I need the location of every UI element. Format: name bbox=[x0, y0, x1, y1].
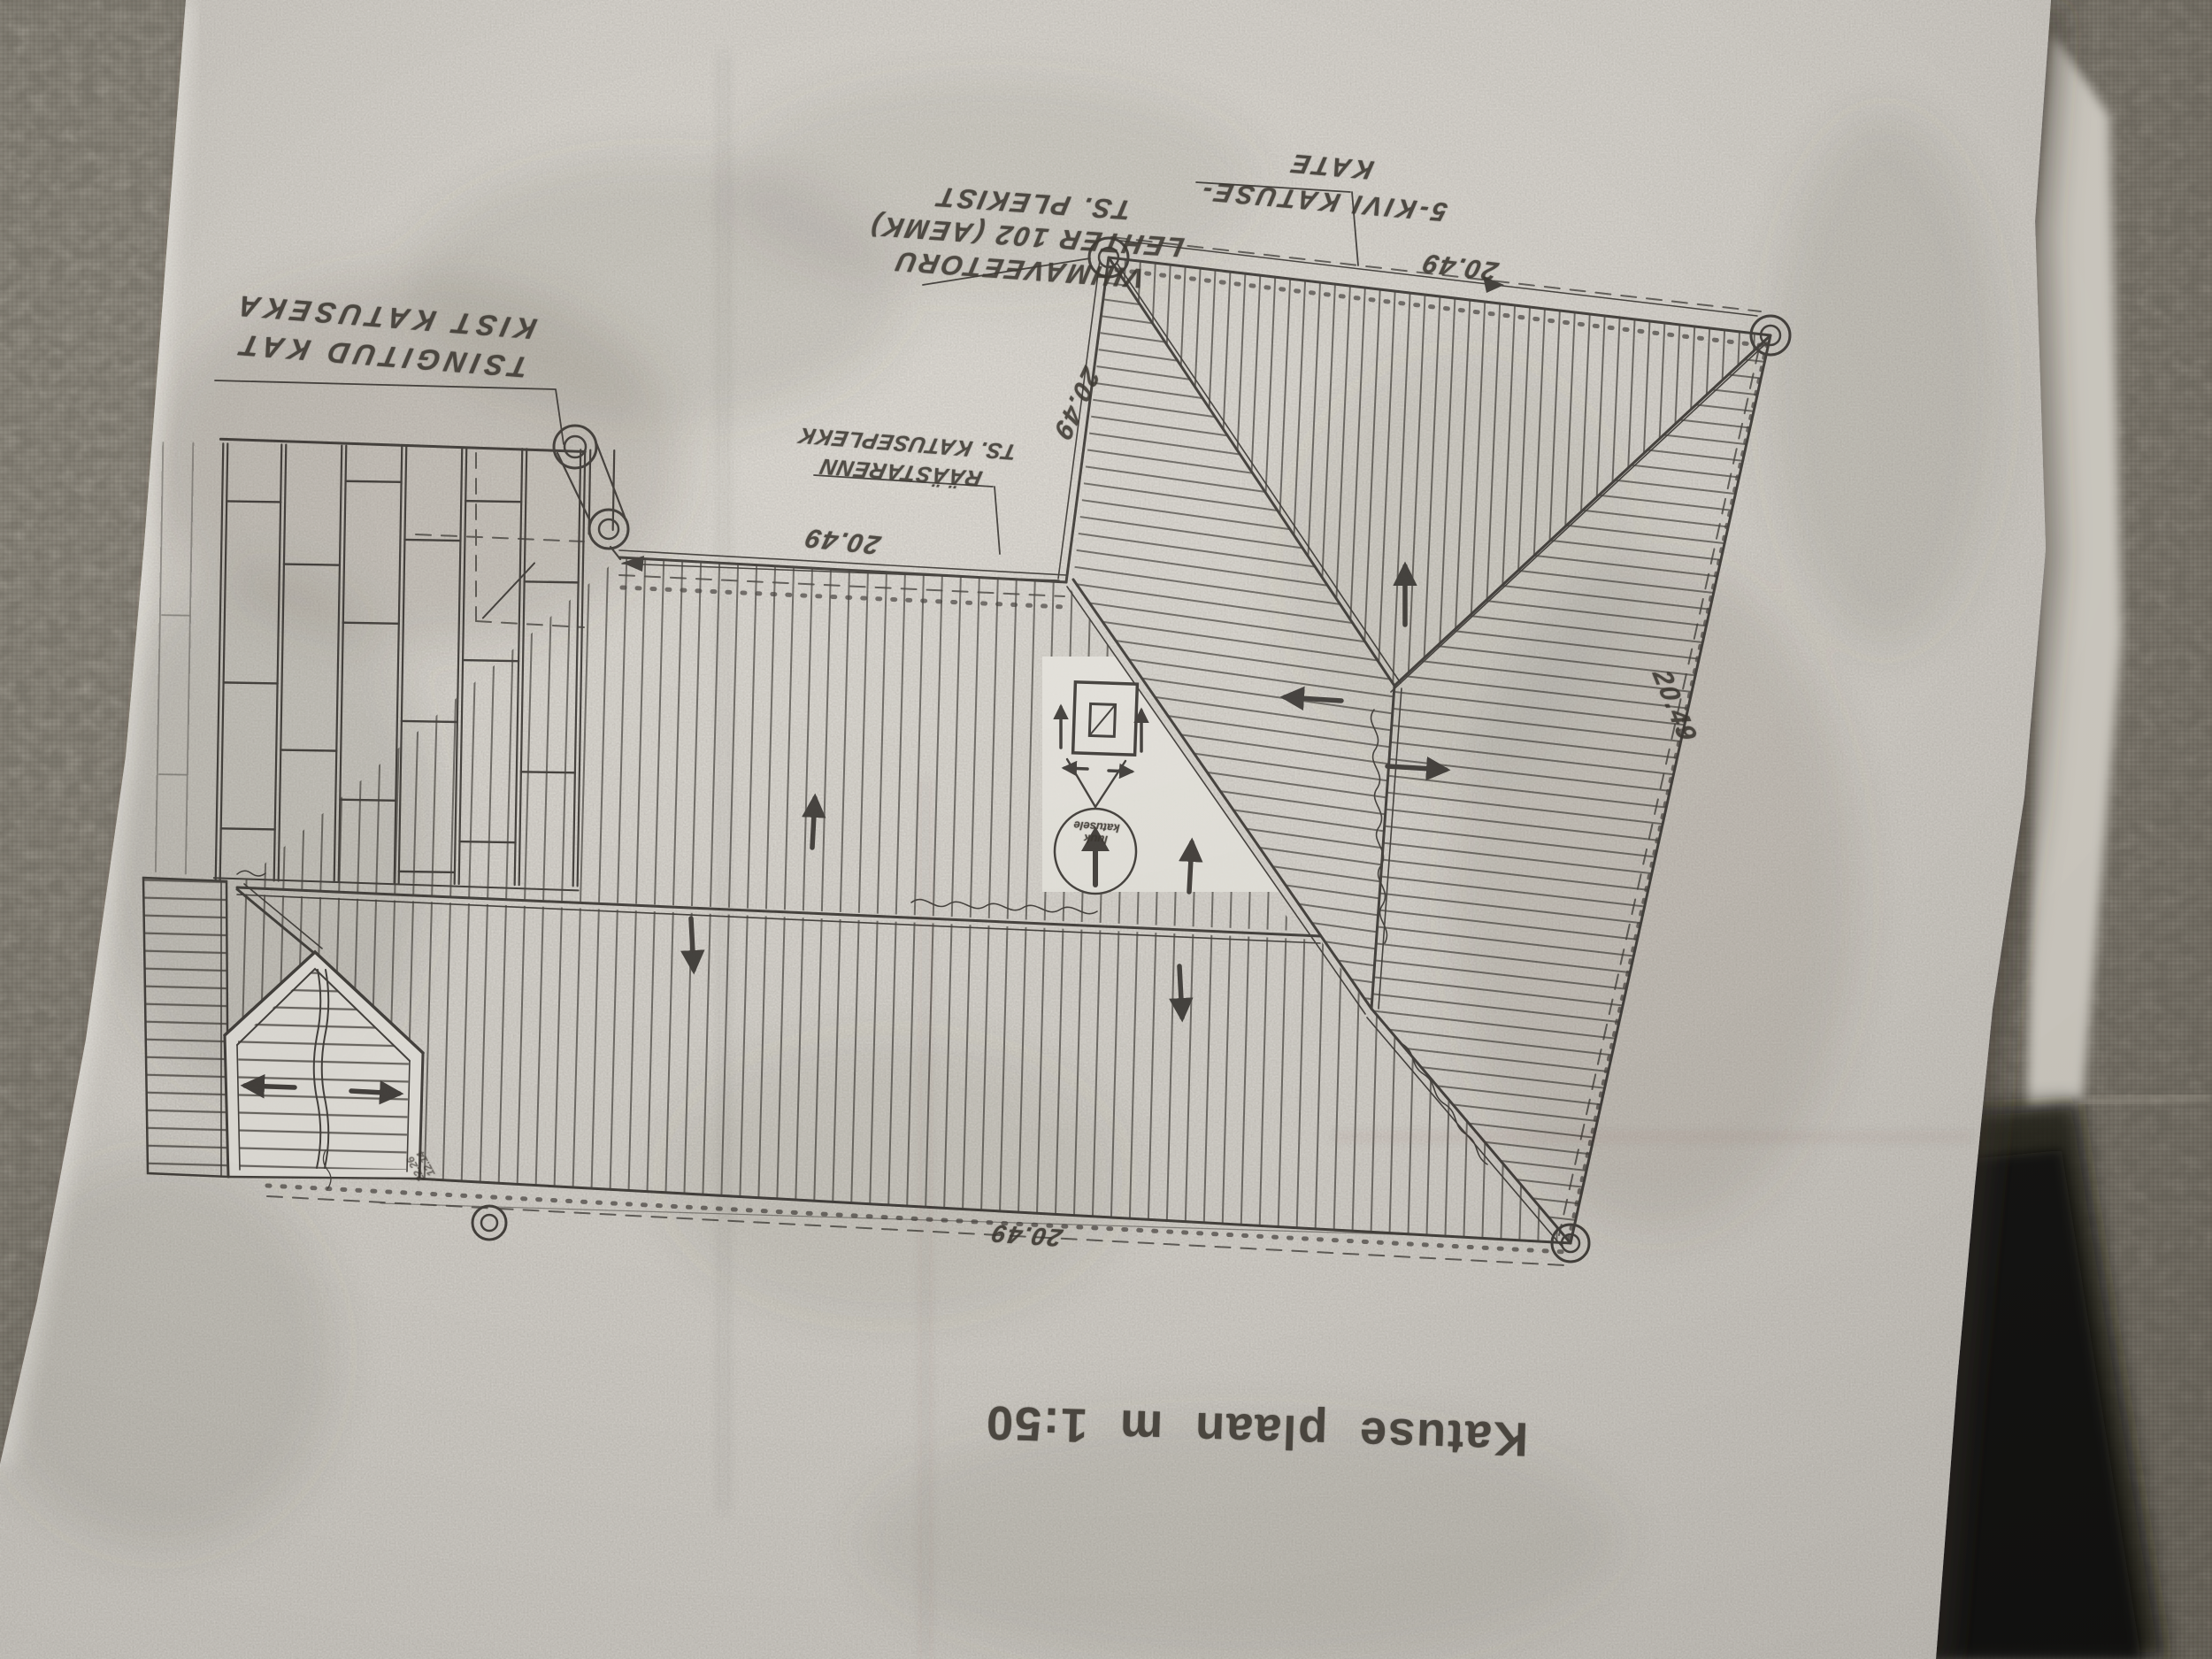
roof-plan-drawing bbox=[0, 0, 2212, 1659]
photo-of-roof-plan: TSINGITUD KAT KIST KATUSEKA RÄÄSTARENN T… bbox=[0, 0, 2212, 1659]
chimney-symbol bbox=[1073, 682, 1138, 755]
paper-sheet bbox=[0, 0, 2212, 1659]
stamp-oval bbox=[1055, 809, 1136, 894]
